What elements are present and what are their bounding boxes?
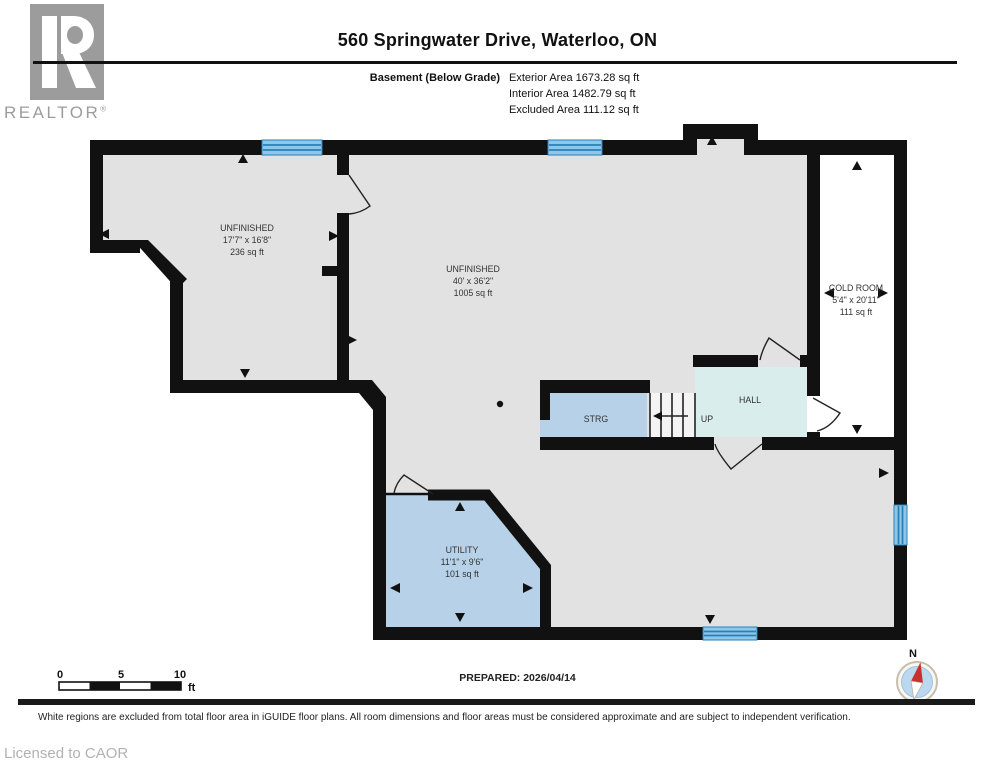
interior-area: Interior Area 1482.79 sq ft (509, 86, 639, 102)
room-label-utility-name: UTILITY (446, 545, 479, 555)
license-text: Licensed to CAOR (4, 745, 128, 762)
room-label-utility-dims: 11'1" x 9'6" (441, 557, 484, 567)
floor-info: Basement (Below Grade) Exterior Area 167… (0, 70, 639, 118)
room-label-unfinished-main-dims: 40' x 36'2" (453, 276, 493, 286)
title-divider (33, 61, 957, 64)
room-label-cold-room-area: 111 sq ft (840, 307, 873, 317)
room-label-utility-area: 101 sq ft (445, 569, 479, 579)
room-label-unfinished-left-name: UNFINISHED (220, 223, 274, 233)
room-label-unfinished-main-area: 1005 sq ft (454, 288, 493, 298)
room-label-hall: HALL (739, 395, 761, 405)
exterior-area: Exterior Area 1673.28 sq ft (509, 70, 639, 86)
footer-divider (18, 699, 975, 705)
excluded-area: Excluded Area 111.12 sq ft (509, 102, 639, 118)
compass-north-label: N (909, 648, 917, 660)
page-title: 560 Springwater Drive, Waterloo, ON (0, 30, 995, 51)
floor-label: Basement (Below Grade) (0, 70, 500, 118)
room-label-storage: STRG (584, 414, 609, 424)
window-top-center (548, 140, 602, 155)
stairs-up-label: UP (701, 414, 713, 424)
support-column-dot (497, 401, 503, 407)
room-label-unfinished-left-dims: 17'7" x 16'8" (223, 235, 271, 245)
floor-plan-page: UNFINISHED 17'7" x 16'8" 236 sq ft UNFIN… (0, 0, 995, 768)
area-summary: Exterior Area 1673.28 sq ft Interior Are… (509, 70, 639, 118)
room-label-cold-room-dims: 5'4" x 20'11" (832, 295, 880, 305)
room-label-unfinished-main-name: UNFINISHED (446, 264, 500, 274)
window-right (894, 505, 907, 545)
prepared-date: PREPARED: 2026/04/14 (40, 672, 995, 684)
disclaimer-text: White regions are excluded from total fl… (38, 712, 975, 723)
window-bottom (703, 627, 757, 640)
room-label-unfinished-left-area: 236 sq ft (230, 247, 264, 257)
room-label-cold-room-name: COLD ROOM (829, 283, 883, 293)
window-top-left (262, 140, 322, 155)
